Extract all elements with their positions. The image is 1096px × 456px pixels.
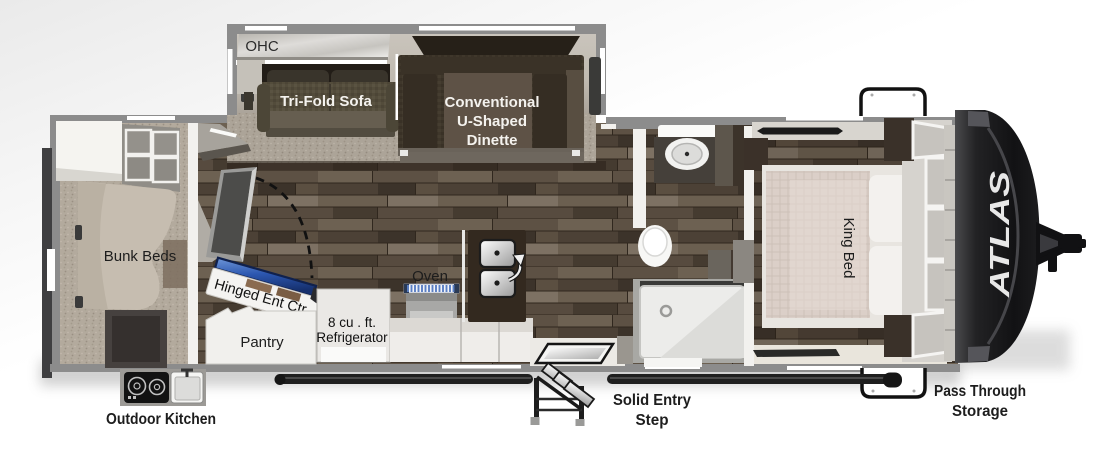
svg-text:Pass Through: Pass Through (934, 383, 1026, 400)
svg-text:Bunk Beds: Bunk Beds (104, 248, 177, 265)
svg-text:Solid Entry: Solid Entry (613, 392, 691, 409)
svg-text:Oven: Oven (412, 268, 448, 285)
svg-text:Pantry: Pantry (240, 334, 284, 351)
svg-text:Outdoor Kitchen: Outdoor Kitchen (106, 411, 216, 428)
svg-text:U-Shaped: U-Shaped (457, 113, 527, 130)
svg-text:Dinette: Dinette (467, 132, 518, 149)
svg-text:Conventional: Conventional (444, 94, 539, 111)
svg-text:Refrigerator: Refrigerator (316, 330, 388, 345)
svg-text:Step: Step (636, 412, 669, 429)
svg-text:Storage: Storage (952, 403, 1008, 420)
svg-text:King Bed: King Bed (840, 218, 857, 279)
svg-text:8 cu . ft.: 8 cu . ft. (328, 315, 376, 330)
svg-text:Tri-Fold Sofa: Tri-Fold Sofa (280, 93, 372, 110)
svg-text:ATLAS: ATLAS (984, 171, 1015, 299)
svg-text:OHC: OHC (245, 38, 279, 55)
